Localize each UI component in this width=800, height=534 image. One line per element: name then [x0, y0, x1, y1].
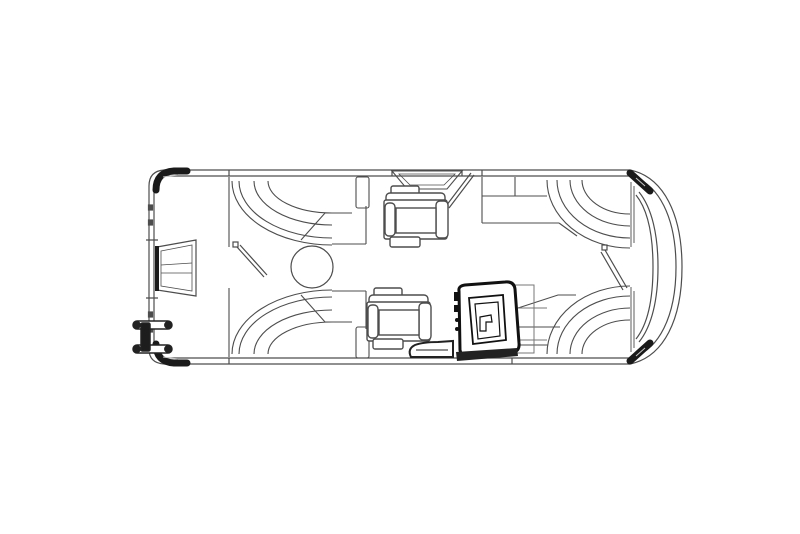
- stern-gate-door: [233, 242, 267, 277]
- bow-lounge-upper: [482, 177, 634, 248]
- floorplan-canvas: [0, 0, 800, 534]
- rear-lounge-upper: [229, 177, 369, 247]
- helm-console: [454, 282, 547, 361]
- captain-chair-upper: [384, 186, 448, 247]
- helm-step: [410, 341, 453, 357]
- round-table: [291, 246, 333, 288]
- outboard-motor: [155, 240, 196, 296]
- bow-lounge-lower: [515, 286, 634, 356]
- bow-gate-door: [601, 245, 627, 290]
- pontoon-floorplan-drawing: [0, 0, 800, 534]
- boarding-ladder: [133, 321, 172, 353]
- rear-lounge-lower: [229, 288, 369, 358]
- captain-chair-lower: [367, 288, 431, 349]
